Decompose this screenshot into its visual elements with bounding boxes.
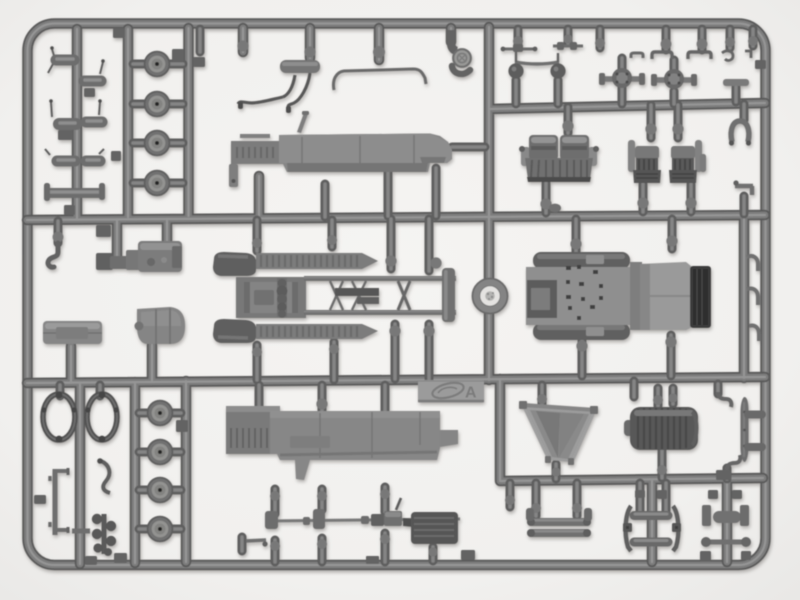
svg-text:A: A [465, 385, 477, 402]
